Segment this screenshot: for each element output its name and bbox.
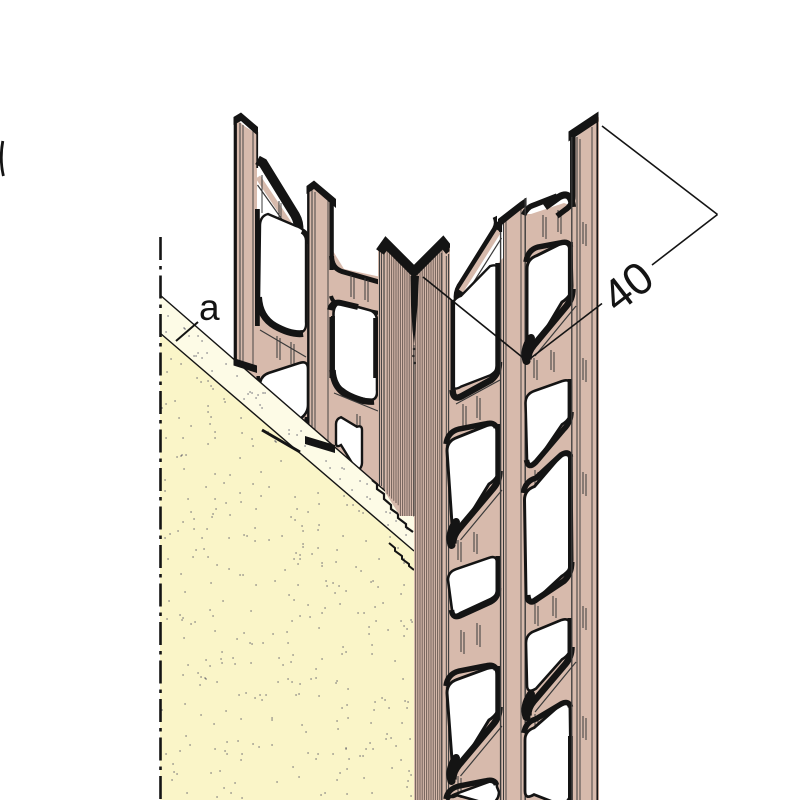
svg-text:a: a [199,287,220,328]
